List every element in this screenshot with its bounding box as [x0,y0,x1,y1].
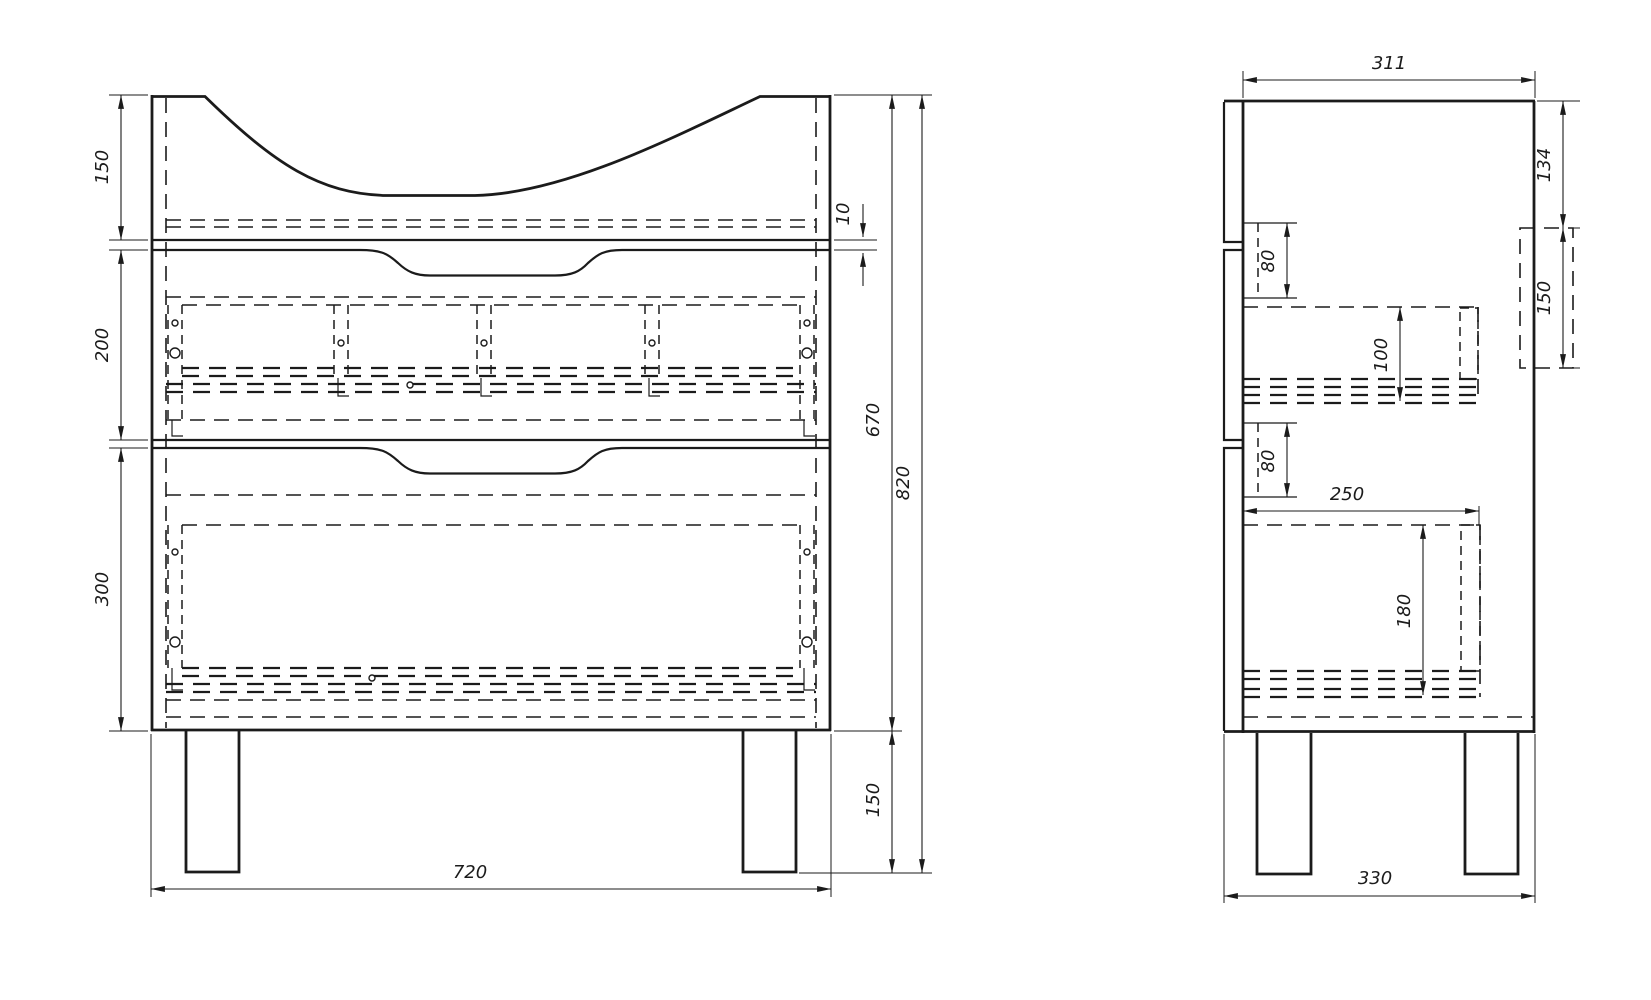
dim-label-drawer-depth: 250 [1330,484,1364,505]
drawer2-fitting-holes [170,549,812,681]
front-carcass-outline [151,95,831,731]
side-dimensions: 311 134 150 80 100 80 250 180 330 [1224,53,1580,903]
dim-label-depth-top: 311 [1372,53,1406,74]
side-back-leg [1465,733,1518,874]
side-drawer2-back-bracket [1461,525,1480,671]
dim-label-drawer2-box-height: 180 [1394,594,1415,628]
drawer2-internals [166,495,816,717]
dim-label-slide-bottom-offset: 80 [1258,450,1279,473]
drawer1-slide-brackets [168,305,815,436]
cabinet-technical-drawing: 150 200 300 720 10 670 150 820 [0,0,1651,1000]
dim-label-drawer2-height: 300 [92,572,113,606]
drawer2-slide-brackets [168,525,815,690]
side-top-panel [1224,102,1243,242]
drawer1-handle-recess [151,250,831,276]
dim-label-drawer1-height: 200 [92,328,113,362]
dim-label-overall-depth: 330 [1358,868,1392,889]
dim-label-gap: 10 [833,203,854,226]
front-dimensions: 150 200 300 720 10 670 150 820 [92,95,932,897]
side-drawer1-box [1243,307,1478,403]
front-left-leg [186,731,239,872]
dim-label-back-cutout-height: 150 [1534,281,1555,315]
dim-label-top-section-height: 150 [92,150,113,184]
side-carcass-outline [1224,101,1535,733]
dim-label-back-top-offset: 134 [1534,148,1555,182]
dim-label-leg-height: 150 [863,783,884,817]
dim-label-slide-top-offset: 80 [1258,250,1279,273]
side-legs [1257,733,1518,874]
side-drawer2-box [1243,525,1534,717]
front-right-leg [743,731,796,872]
front-legs [186,731,796,872]
sink-cutout-curve [151,97,831,196]
dim-label-drawer1-box-height: 100 [1371,338,1392,372]
drawer1-internals [166,297,816,436]
front-hidden-panels [166,98,816,728]
side-drawer2-front [1224,448,1243,731]
side-drawer1-front [1224,250,1243,440]
side-view: 311 134 150 80 100 80 250 180 330 [1224,53,1580,903]
dim-label-body-height: 670 [863,403,884,437]
dim-label-overall-height: 820 [893,466,914,500]
drawer2-handle-recess [151,448,831,474]
front-view: 150 200 300 720 10 670 150 820 [92,95,932,897]
side-drawer1-back-bracket [1460,308,1478,379]
dim-label-overall-width: 720 [453,862,487,883]
drawing-canvas: 150 200 300 720 10 670 150 820 [0,0,1651,1000]
side-front-leg [1257,733,1311,874]
